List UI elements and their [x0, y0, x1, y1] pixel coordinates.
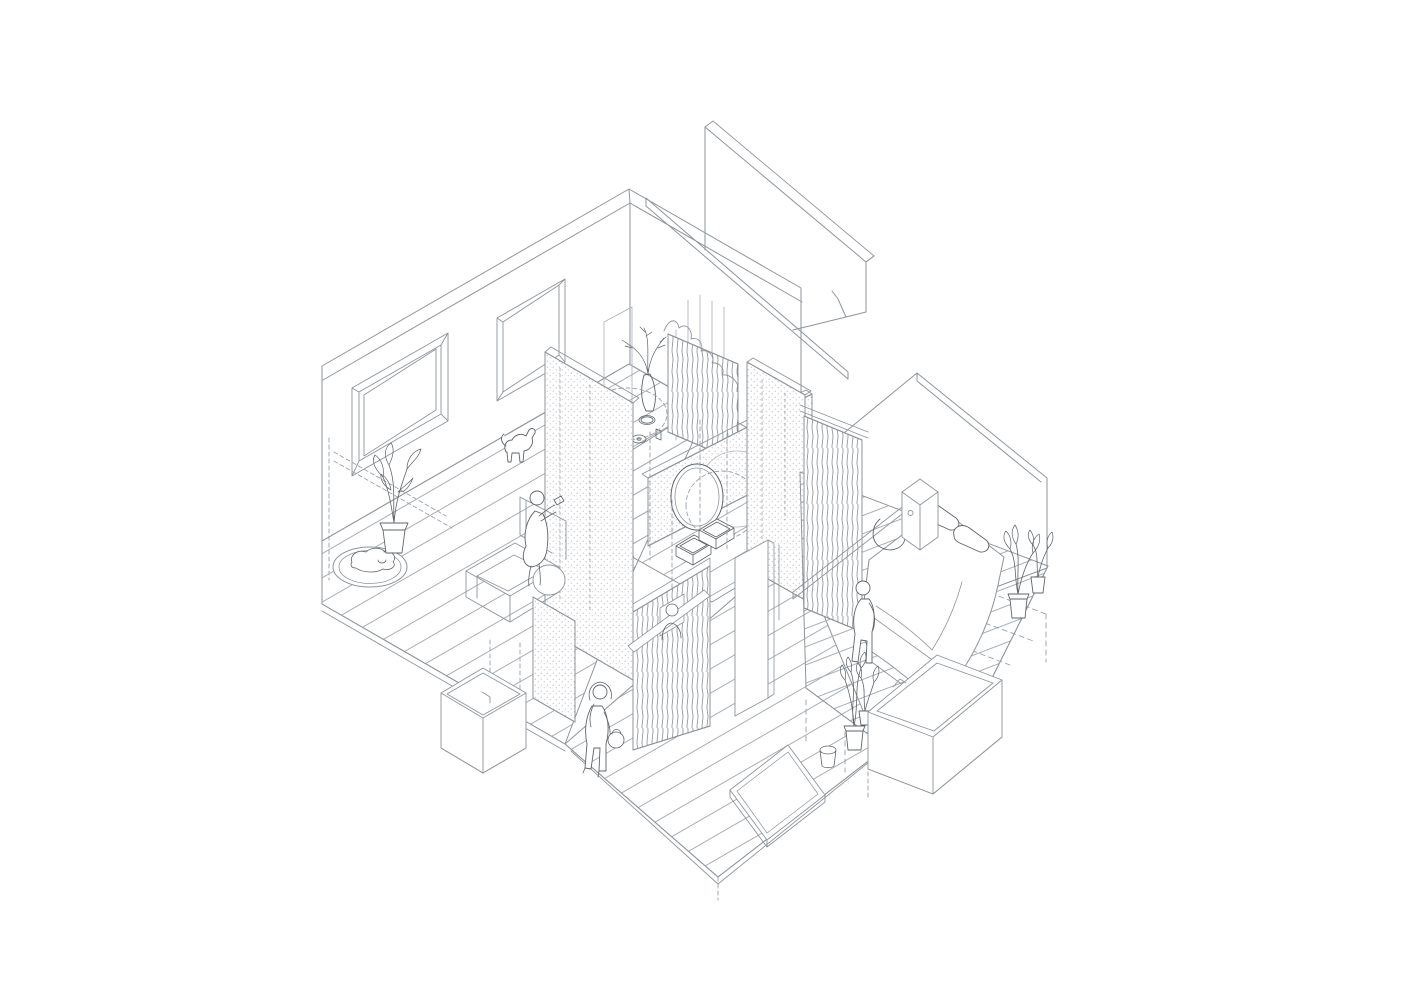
- slab-wall-top-right: [705, 121, 874, 330]
- drawing-canvas: [0, 0, 1414, 1000]
- nightstand-cube: [902, 479, 938, 550]
- curtain-window: [628, 558, 710, 750]
- axonometric-apartment-drawing: [0, 0, 1414, 1000]
- curtain-right: [800, 405, 868, 632]
